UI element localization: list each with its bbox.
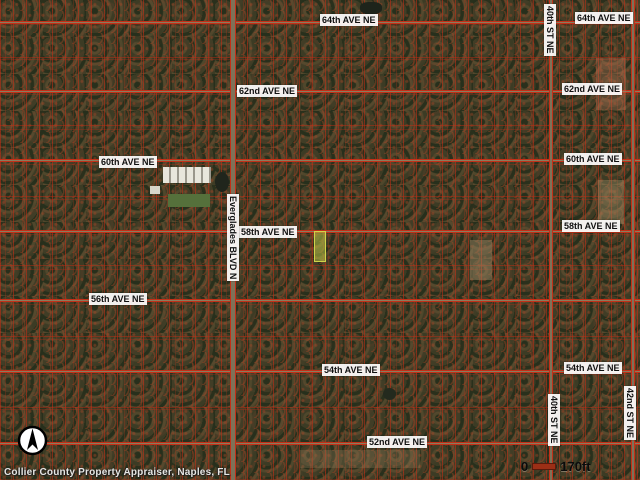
pond: [215, 172, 229, 192]
street-label-lbl-40-bot: 40th ST NE: [548, 394, 560, 446]
scale-end: 170ft: [560, 459, 590, 474]
terrain-patch: [470, 240, 492, 280]
scale-bar-segment: [532, 463, 556, 470]
street-label-lbl-60-right: 60th AVE NE: [564, 153, 622, 165]
compass: [17, 425, 48, 456]
road-62nd-ave: [0, 90, 640, 93]
street-label-lbl-58-right: 58th AVE NE: [562, 220, 620, 232]
street-label-lbl-40-top: 40th ST NE: [544, 4, 556, 56]
street-label-lbl-58-mid: 58th AVE NE: [239, 226, 297, 238]
building-complex: [163, 167, 211, 183]
parcel-line: [0, 196, 640, 197]
street-label-lbl-52-mid: 52nd AVE NE: [367, 436, 427, 448]
street-label-lbl-54-right: 54th AVE NE: [564, 362, 622, 374]
street-label-lbl-54-mid: 54th AVE NE: [322, 364, 380, 376]
building: [150, 186, 160, 194]
highlighted-parcel[interactable]: [314, 231, 326, 262]
terrain-patch: [598, 180, 624, 224]
north-arrow-icon: [17, 425, 48, 456]
road-52nd-ave: [0, 442, 640, 445]
pond: [383, 388, 396, 400]
street-label-lbl-62-right: 62nd AVE NE: [562, 83, 622, 95]
street-label-lbl-64-left: 64th AVE NE: [320, 14, 378, 26]
map-viewport: 64th AVE NE64th AVE NE62nd AVE NE62nd AV…: [0, 0, 640, 480]
parcel-line: [0, 125, 640, 126]
road-54th-ave: [0, 370, 640, 373]
street-label-lbl-62-left: 62nd AVE NE: [237, 85, 297, 97]
field: [168, 194, 210, 207]
parcel-line: [0, 265, 640, 266]
street-label-lbl-64-right: 64th AVE NE: [575, 12, 633, 24]
scale-bar: 0 170ft: [521, 459, 591, 474]
street-label-lbl-60-left: 60th AVE NE: [99, 156, 157, 168]
street-label-lbl-evg: Everglades BLVD N: [227, 194, 239, 281]
pond: [360, 2, 382, 14]
parcel-line: [0, 407, 640, 408]
parcel-line: [0, 336, 640, 337]
street-label-lbl-42-bot: 42nd ST NE: [624, 386, 636, 440]
parcel-line: [0, 57, 640, 58]
terrain-patch: [300, 450, 420, 468]
street-label-lbl-56-left: 56th AVE NE: [89, 293, 147, 305]
attribution-text: Collier County Property Appraiser, Naple…: [4, 467, 230, 478]
scale-start: 0: [521, 459, 528, 474]
road-60th-ave: [0, 159, 640, 162]
